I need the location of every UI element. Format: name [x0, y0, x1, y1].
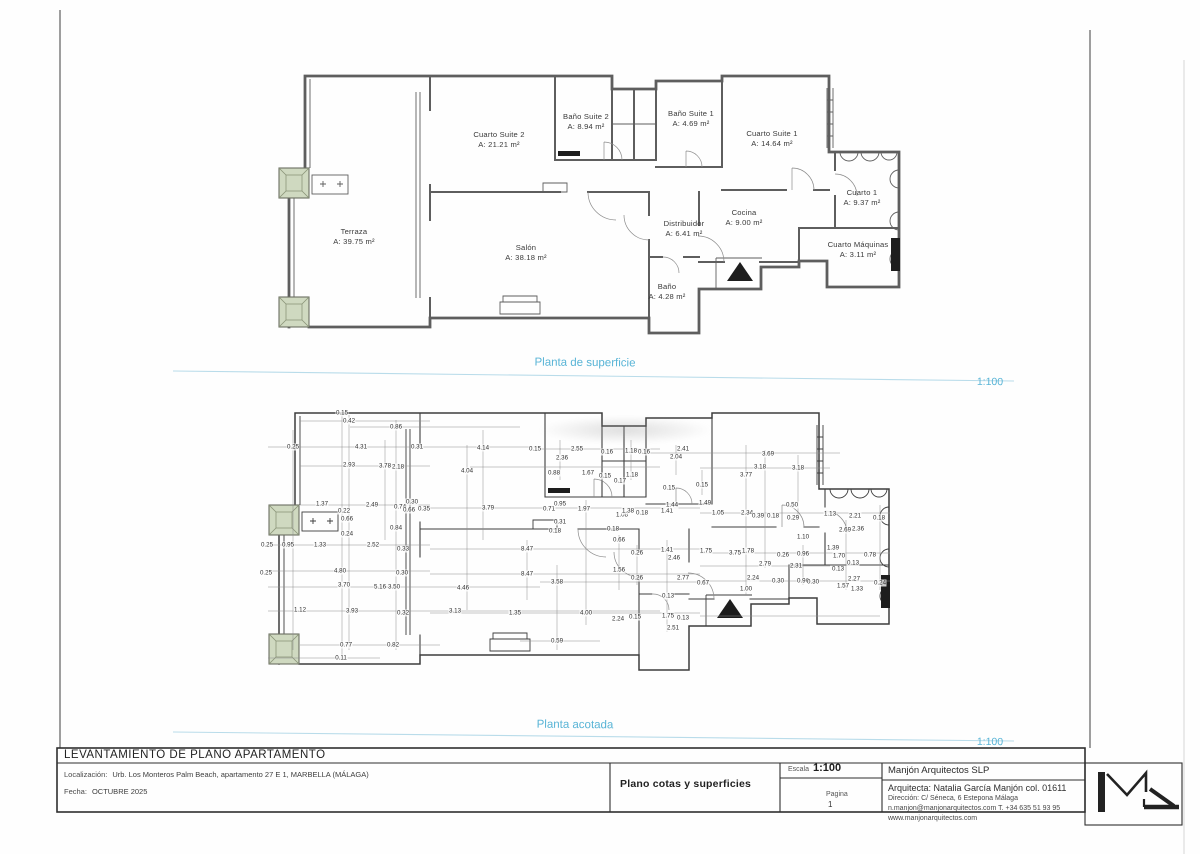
dimension-label: 0.66	[402, 507, 415, 514]
dimension-label: 0.30	[395, 570, 408, 577]
room-name: Salón	[505, 243, 546, 253]
dimension-label: 1.78	[741, 548, 754, 555]
dimension-label: 2.46	[667, 555, 680, 562]
contact-line: n.manjon@manjonarquitectos.com T. +34 63…	[888, 805, 1060, 812]
dimension-label: 2.31	[789, 563, 802, 570]
green-column	[279, 168, 309, 198]
dimension-label: 0.25	[260, 542, 273, 549]
planter	[312, 175, 348, 194]
dimension-label: 0.15	[528, 446, 541, 453]
dimension-label: 3.70	[337, 582, 350, 589]
dimension-label: 1.39	[826, 545, 839, 552]
dimension-label: 2.55	[570, 446, 583, 453]
dimension-label: 0.66	[340, 516, 353, 523]
dimension-label: 3.93	[345, 608, 358, 615]
dimension-label: 0.33	[396, 546, 409, 553]
date-value: OCTUBRE 2025	[92, 787, 147, 796]
website-line: www.manjonarquitectos.com	[888, 815, 977, 822]
room-name: Cuarto Suite 1	[746, 129, 797, 139]
room-label: BañoA: 4.28 m²	[648, 282, 685, 301]
dimension-label: 0.15	[598, 473, 611, 480]
dimension-label: 0.30	[405, 499, 418, 506]
dimension-label: 8.47	[520, 571, 533, 578]
green-column	[279, 297, 309, 327]
dimension-label: 1.97	[577, 506, 590, 513]
dimension-label: 0.31	[553, 519, 566, 526]
shaft	[891, 238, 900, 271]
dimension-label: 0.15	[662, 485, 675, 492]
room-label: Cuarto 1A: 9.37 m²	[843, 188, 880, 207]
dimension-label: 0.13	[676, 615, 689, 622]
dimension-label: 1.56	[612, 567, 625, 574]
dimension-label: 4.04	[460, 468, 473, 475]
room-area: A: 4.69 m²	[668, 119, 714, 129]
room-name: Baño Suite 1	[668, 109, 714, 119]
plan-title-acotada: Planta acotada	[537, 719, 614, 732]
dimension-label: 0.77	[339, 642, 352, 649]
dimension-label: 0.17	[613, 478, 626, 485]
dimension-label: 0.30	[806, 579, 819, 586]
dimension-label: 0.26	[630, 550, 643, 557]
dimension-label: 3.58	[550, 579, 563, 586]
room-area: A: 14.64 m²	[746, 139, 797, 149]
dimension-label: 2.21	[848, 513, 861, 520]
dimension-label: 0.25	[286, 444, 299, 451]
dimension-label: 1.35	[508, 610, 521, 617]
dimension-label: 1.41	[660, 547, 673, 554]
dimension-label: 1.75	[661, 613, 674, 620]
project-title: LEVANTAMIENTO DE PLANO APARTAMENTO	[64, 749, 326, 761]
dimension-label: 1.12	[293, 607, 306, 614]
dimension-label: 2.36	[851, 526, 864, 533]
dimension-label: 0.16	[600, 449, 613, 456]
scale-label: Escala	[788, 766, 809, 773]
scale-value: 1:100	[813, 762, 841, 774]
dimension-label: 0.15	[335, 410, 348, 417]
dimension-label: 4.14	[476, 445, 489, 452]
firm-name: Manjón Arquitectos SLP	[888, 765, 989, 776]
page-number: 1	[828, 800, 832, 809]
window-sill	[558, 151, 580, 156]
dimension-label: 0.26	[776, 552, 789, 559]
dimension-label: 0.96	[796, 551, 809, 558]
location-value: Urb. Los Monteros Palm Beach, apartament…	[112, 770, 368, 779]
date-line: Fecha:OCTUBRE 2025	[64, 787, 147, 796]
room-label: DistribuidorA: 6.41 m²	[664, 219, 705, 238]
dimension-label: 1.49	[698, 500, 711, 507]
sheet-title: Plano cotas y superficies	[620, 778, 751, 790]
location-line: Localización:Urb. Los Monteros Palm Beac…	[64, 770, 369, 779]
dimension-label: 0.18	[606, 526, 619, 533]
dimension-label: 1.41	[660, 508, 673, 515]
dimension-label: 2.41	[676, 446, 689, 453]
dimension-label: 3.69	[761, 451, 774, 458]
room-area: A: 4.28 m²	[648, 292, 685, 302]
page-border-lines	[60, 10, 1184, 854]
room-area: A: 21.21 m²	[473, 140, 524, 150]
location-label: Localización:	[64, 770, 107, 779]
dimension-label: 0.67	[696, 580, 709, 587]
dimension-label: 1.75	[699, 548, 712, 555]
dimension-label: 0.82	[386, 642, 399, 649]
dimension-label: 2.24	[611, 616, 624, 623]
dimension-label: 0.25	[259, 570, 272, 577]
dimension-label: 3.13	[448, 608, 461, 615]
dimension-label: 3.77	[739, 472, 752, 479]
sheet-background: Cuarto Suite 2A: 21.21 m²Baño Suite 2A: …	[0, 0, 1200, 854]
room-name: Distribuidor	[664, 219, 705, 229]
dimension-label: 1.37	[315, 501, 328, 508]
dimension-label: 0.13	[846, 560, 859, 567]
dimension-label: 0.15	[628, 614, 641, 621]
dimension-label: 2.69	[838, 527, 851, 534]
dimension-label: 1.33	[850, 586, 863, 593]
dimension-label: 1.18	[625, 472, 638, 479]
room-label: Baño Suite 2A: 8.94 m²	[563, 112, 609, 131]
dimension-label: 4.46	[456, 585, 469, 592]
dimension-label: 2.49	[365, 502, 378, 509]
dimension-label: 3.18	[791, 465, 804, 472]
page-label: Pagina	[826, 791, 848, 798]
room-name: Cuarto Máquinas	[828, 240, 889, 250]
room-name: Cuarto 1	[843, 188, 880, 198]
room-name: Baño	[648, 282, 685, 292]
dimension-label: 2.79	[758, 561, 771, 568]
dimension-label: 2.93	[342, 462, 355, 469]
dimension-label: 2.04	[669, 454, 682, 461]
dimension-label: 0.88	[547, 470, 560, 477]
dimension-label: 0.15	[695, 482, 708, 489]
dimension-label: 2.51	[666, 625, 679, 632]
room-name: Baño Suite 2	[563, 112, 609, 122]
dimension-label: 1.10	[796, 534, 809, 541]
dimension-label: 0.42	[342, 418, 355, 425]
dimension-label: 0.13	[831, 566, 844, 573]
dimension-label: 1.57	[836, 583, 849, 590]
dimension-label: 0.84	[389, 525, 402, 532]
dimension-label: 1.13	[823, 511, 836, 518]
dimension-label: 1.18	[624, 448, 637, 455]
room-name: Cuarto Suite 2	[473, 130, 524, 140]
dimension-label: 0.35	[417, 506, 430, 513]
room-area: A: 9.37 m²	[843, 198, 880, 208]
dimension-label: 0.18	[635, 510, 648, 517]
dimension-label: 0.18	[766, 513, 779, 520]
scanned-plan-sheet: { "accent_color": "#58b4d6", "plans": { …	[0, 0, 1200, 854]
dimension-label: 1.38	[621, 508, 634, 515]
plan-title-superficie: Planta de superficie	[534, 357, 635, 370]
dimension-label: 8.47	[520, 546, 533, 553]
plan-scale-superficie: 1:100	[977, 376, 1003, 388]
dimension-label: 1.33	[313, 542, 326, 549]
room-label: CocinaA: 9.00 m²	[725, 208, 762, 227]
dimension-label: 0.18	[548, 528, 561, 535]
address-line: Dirección: C/ Séneca, 6 Estepona Málaga	[888, 795, 1018, 802]
plan-scale-acotada: 1:100	[977, 736, 1003, 748]
room-area: A: 8.94 m²	[563, 122, 609, 132]
dimension-label: 1.44	[665, 502, 678, 509]
dimension-label: 5.16	[373, 584, 386, 591]
dimension-label: 2.24	[746, 575, 759, 582]
room-area: A: 9.00 m²	[725, 218, 762, 228]
room-label: SalónA: 38.18 m²	[505, 243, 546, 262]
dimension-label: 0.30	[771, 578, 784, 585]
dimension-label: 0.78	[863, 552, 876, 559]
dimension-label: 0.86	[389, 424, 402, 431]
dimension-label: 3.79	[481, 505, 494, 512]
dimension-label: 1.05	[711, 510, 724, 517]
date-label: Fecha:	[64, 787, 87, 796]
dimension-label: 0.32	[396, 610, 409, 617]
divider-lines	[173, 371, 1014, 741]
dimension-label: 1.00	[739, 586, 752, 593]
dimension-label: 1.67	[581, 470, 594, 477]
room-area: A: 39.75 m²	[333, 237, 374, 247]
room-label: Cuarto MáquinasA: 3.11 m²	[828, 240, 889, 259]
architect-line: Arquitecta: Natalia García Manjón col. 0…	[888, 783, 1066, 793]
entrance-arrow	[727, 262, 753, 281]
dimension-label: 4.00	[579, 610, 592, 617]
room-name: Terraza	[333, 227, 374, 237]
room-label: Cuarto Suite 2A: 21.21 m²	[473, 130, 524, 149]
dimension-label: 0.31	[410, 444, 423, 451]
dimension-label: 4.31	[354, 444, 367, 451]
dimension-label: 3.50	[387, 584, 400, 591]
dimension-label: 2.77	[676, 575, 689, 582]
dimension-label: 0.66	[612, 537, 625, 544]
dimension-label: 3.78	[378, 463, 391, 470]
dimension-label: 0.16	[637, 449, 650, 456]
room-label: Cuarto Suite 1A: 14.64 m²	[746, 129, 797, 148]
dimension-label: 3.75	[728, 550, 741, 557]
room-area: A: 3.11 m²	[828, 250, 889, 260]
ma-logo	[1098, 772, 1179, 812]
dimension-label: 2.18	[391, 464, 404, 471]
dimension-label: 0.95	[553, 501, 566, 508]
dimension-label: 0.50	[785, 502, 798, 509]
dimension-label: 3.18	[753, 464, 766, 471]
dimension-label: 0.18	[872, 515, 885, 522]
dimension-label: 2.52	[366, 542, 379, 549]
dimension-label: 0.24	[873, 580, 886, 587]
dimension-label: 0.29	[786, 515, 799, 522]
room-area: A: 38.18 m²	[505, 253, 546, 263]
dimension-label: 2.36	[555, 455, 568, 462]
dimension-label: 0.59	[550, 638, 563, 645]
room-name: Cocina	[725, 208, 762, 218]
dimension-label: 0.24	[340, 531, 353, 538]
dimension-label: 2.27	[847, 576, 860, 583]
room-label: TerrazaA: 39.75 m²	[333, 227, 374, 246]
dimension-label: 0.22	[337, 508, 350, 515]
dimension-label: 0.26	[630, 575, 643, 582]
dimension-label: 0.11	[335, 655, 348, 662]
dimension-label: 4.80	[333, 568, 346, 575]
dimension-label: 0.95	[281, 542, 294, 549]
fireplace	[500, 296, 540, 314]
room-label: Baño Suite 1A: 4.69 m²	[668, 109, 714, 128]
room-area: A: 6.41 m²	[664, 229, 705, 239]
dimension-label: 0.13	[661, 593, 674, 600]
dimension-label: 0.39	[751, 513, 764, 520]
dimension-label: 1.70	[832, 553, 845, 560]
